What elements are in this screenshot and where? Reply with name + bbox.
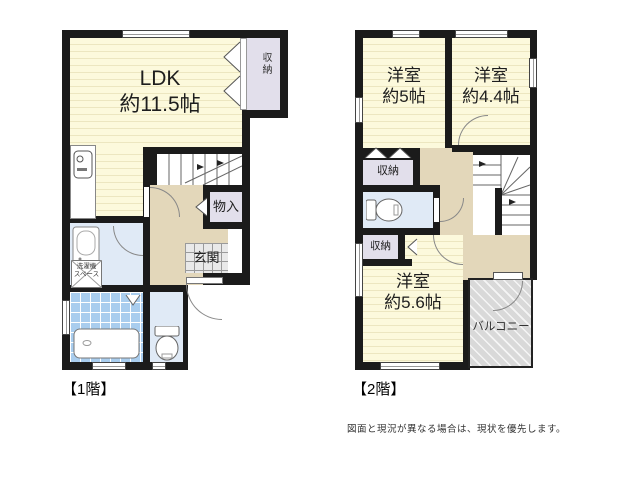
wall [398,235,405,259]
wall [413,148,420,185]
wall [143,147,242,154]
window [152,362,166,370]
wall [445,30,452,148]
entrance-door [186,277,223,284]
wall [355,228,440,235]
stairs-2f [473,155,530,235]
toilet-icon [152,326,182,362]
wall [355,259,412,266]
door-opening [493,272,523,280]
storage-door-icon [193,196,209,218]
door-arc [186,284,222,320]
closet-2f-a-label: 収納 [363,165,413,178]
floor2-caption: 【2階】 [352,378,405,399]
balcony-label: バルコニー [466,320,536,334]
wall [143,292,150,362]
closet-1f-label: 収納 [258,52,273,76]
floor1-caption: 【1階】 [62,378,115,399]
bedroom2-label: 洋室 約4.4帖 [452,66,530,107]
wall [203,222,242,229]
wall [355,185,440,192]
window [92,362,126,370]
door-opening [434,198,439,222]
door-opening [144,187,149,217]
toilet-icon [366,196,404,224]
window [529,58,537,88]
entrance-porch [228,229,242,273]
vanity-sink-icon [72,226,100,264]
ldk-label: LDK 約11.5帖 [80,66,240,117]
closet-2f-b-label: 収納 [363,240,398,253]
storage-1f-label: 物入 [210,199,242,215]
closet-door-icon [405,237,419,257]
wall [452,145,537,152]
wall [203,185,242,192]
bathtub-icon [73,328,140,359]
stairs-1f [157,154,242,185]
bedroom3-label: 洋室 約5.6帖 [363,272,463,313]
bedroom1-label: 洋室 約5帖 [363,66,445,107]
window [392,30,420,38]
laundry-label: 洗濯機 スペース [68,263,105,279]
shower-mark-icon [124,293,142,307]
wall [223,273,250,285]
entrance-label: 玄関 [185,250,228,266]
window [380,362,440,370]
window [122,30,190,38]
disclaimer-text: 図面と現況が異なる場合は、現状を優先します。 [347,421,566,435]
folding-door-icon [363,146,413,160]
window [62,300,70,335]
window [355,97,363,123]
kitchen-sink-icon [73,150,93,180]
floor-plan: 洗濯機 スペース [0,0,640,480]
window [455,30,508,38]
window [355,243,363,297]
